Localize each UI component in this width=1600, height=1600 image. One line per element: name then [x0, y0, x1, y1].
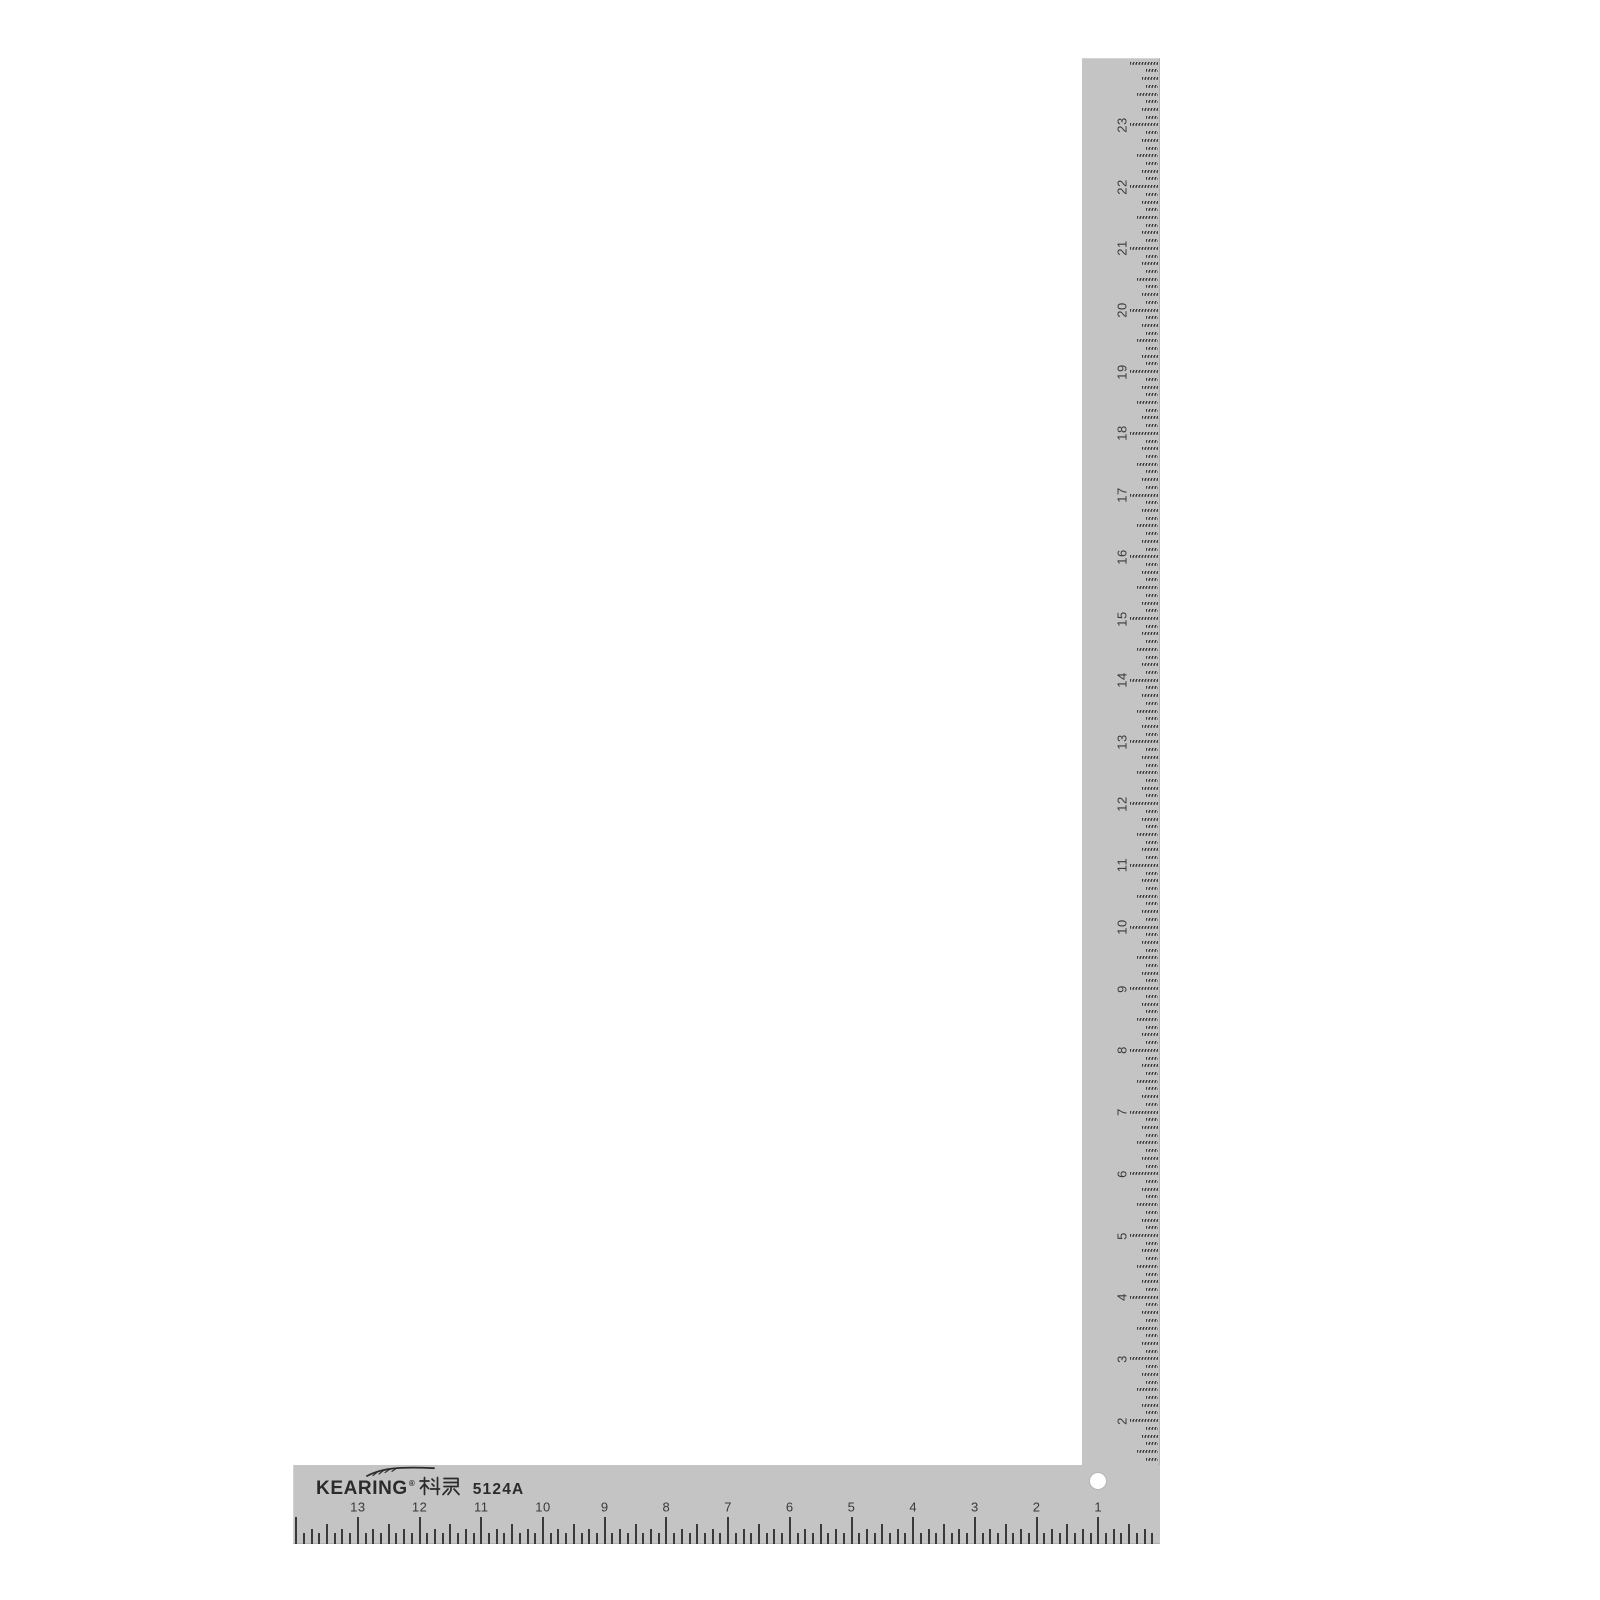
horizontal-tick-mark — [434, 1529, 436, 1544]
vertical-tick-mark — [1142, 1003, 1158, 1006]
vertical-tick-mark — [1142, 170, 1158, 173]
vertical-tick-mark — [1146, 378, 1158, 381]
vertical-tick-mark — [1146, 933, 1158, 936]
vertical-tick-mark — [1146, 918, 1158, 921]
vertical-tick-mark — [1146, 1381, 1158, 1384]
horizontal-tick-mark — [989, 1529, 991, 1544]
horizontal-tick-mark — [912, 1517, 914, 1544]
vertical-tick-mark — [1146, 239, 1158, 242]
horizontal-tick-mark — [1074, 1533, 1076, 1544]
horizontal-tick-mark — [519, 1533, 521, 1544]
vertical-tick-mark — [1137, 401, 1158, 404]
horizontal-tick-mark — [581, 1533, 583, 1544]
vertical-tick-mark — [1146, 1257, 1158, 1260]
ruler-vertical-arm: 1234567891011121314151617181920212223 — [1082, 58, 1160, 1544]
horizontal-tick-mark — [349, 1533, 351, 1544]
vertical-tick-mark — [1146, 671, 1158, 674]
vertical-tick-mark — [1146, 1288, 1158, 1291]
hanging-hole — [1090, 1473, 1106, 1489]
horizontal-tick-mark — [604, 1517, 606, 1544]
vertical-inch-label: 23 — [1116, 117, 1129, 132]
horizontal-tick-mark — [627, 1533, 629, 1544]
horizontal-tick-mark — [874, 1533, 876, 1544]
vertical-tick-mark — [1146, 409, 1158, 412]
vertical-tick-mark — [1142, 972, 1158, 975]
horizontal-tick-mark — [611, 1533, 613, 1544]
horizontal-tick-mark — [650, 1529, 652, 1544]
vertical-tick-mark — [1142, 571, 1158, 574]
vertical-tick-mark — [1146, 594, 1158, 597]
horizontal-inch-label: 9 — [601, 1501, 609, 1514]
vertical-tick-mark — [1130, 1357, 1158, 1360]
horizontal-tick-mark — [542, 1517, 544, 1544]
horizontal-tick-mark — [295, 1517, 297, 1544]
vertical-tick-mark — [1130, 247, 1158, 250]
vertical-tick-mark — [1146, 1365, 1158, 1368]
vertical-inch-label: 7 — [1116, 1108, 1129, 1116]
horizontal-tick-mark — [1136, 1533, 1138, 1544]
horizontal-tick-mark — [1051, 1529, 1053, 1544]
vertical-tick-mark — [1142, 1095, 1158, 1098]
vertical-tick-mark — [1142, 447, 1158, 450]
horizontal-tick-mark — [773, 1529, 775, 1544]
vertical-tick-mark — [1130, 494, 1158, 497]
horizontal-tick-mark — [712, 1529, 714, 1544]
vertical-tick-mark — [1146, 255, 1158, 258]
horizontal-tick-mark — [419, 1517, 421, 1544]
vertical-tick-mark — [1146, 162, 1158, 165]
horizontal-tick-mark — [812, 1533, 814, 1544]
vertical-tick-mark — [1142, 1404, 1158, 1407]
vertical-tick-mark — [1146, 887, 1158, 890]
vertical-tick-mark — [1137, 710, 1158, 713]
horizontal-tick-mark — [1113, 1529, 1115, 1544]
vertical-tick-mark — [1142, 879, 1158, 882]
horizontal-tick-mark — [974, 1517, 976, 1544]
vertical-tick-mark — [1137, 956, 1158, 959]
vertical-tick-mark — [1146, 270, 1158, 273]
vertical-tick-mark — [1142, 787, 1158, 790]
vertical-tick-mark — [1142, 1311, 1158, 1314]
vertical-tick-mark — [1142, 1033, 1158, 1036]
horizontal-tick-mark — [758, 1524, 760, 1544]
horizontal-tick-mark — [388, 1524, 390, 1544]
vertical-tick-mark — [1146, 733, 1158, 736]
vertical-tick-mark — [1137, 648, 1158, 651]
vertical-inch-label: 22 — [1116, 179, 1129, 194]
vertical-tick-mark — [1137, 93, 1158, 96]
vertical-tick-mark — [1146, 116, 1158, 119]
horizontal-tick-mark — [982, 1533, 984, 1544]
ruler-horizontal-arm: 12345678910111213 KEARING ® 5124A — [293, 1465, 1160, 1544]
vertical-tick-mark — [1142, 201, 1158, 204]
vertical-tick-mark — [1146, 69, 1158, 72]
vertical-tick-mark — [1130, 1172, 1158, 1175]
vertical-tick-mark — [1137, 216, 1158, 219]
horizontal-inch-label: 8 — [663, 1501, 671, 1514]
vertical-tick-mark — [1146, 1442, 1158, 1445]
vertical-tick-mark — [1142, 1435, 1158, 1438]
horizontal-tick-mark — [897, 1529, 899, 1544]
horizontal-tick-mark — [573, 1524, 575, 1544]
vertical-tick-mark — [1146, 856, 1158, 859]
vertical-tick-mark — [1142, 848, 1158, 851]
vertical-inch-label: 17 — [1116, 487, 1129, 502]
vertical-tick-mark — [1146, 578, 1158, 581]
horizontal-tick-mark — [642, 1533, 644, 1544]
horizontal-tick-mark — [442, 1533, 444, 1544]
vertical-tick-mark — [1146, 208, 1158, 211]
horizontal-tick-mark — [866, 1529, 868, 1544]
horizontal-tick-mark — [311, 1529, 313, 1544]
vertical-tick-mark — [1130, 1419, 1158, 1422]
vertical-tick-mark — [1146, 1087, 1158, 1090]
horizontal-tick-mark — [1059, 1533, 1061, 1544]
horizontal-tick-mark — [851, 1517, 853, 1544]
horizontal-inch-label: 3 — [971, 1501, 979, 1514]
horizontal-tick-mark — [596, 1533, 598, 1544]
vertical-tick-mark — [1142, 1157, 1158, 1160]
vertical-inch-label: 16 — [1116, 549, 1129, 564]
vertical-tick-mark — [1146, 470, 1158, 473]
horizontal-tick-mark — [411, 1533, 413, 1544]
vertical-tick-mark — [1137, 339, 1158, 342]
vertical-tick-mark — [1146, 841, 1158, 844]
horizontal-tick-mark — [588, 1529, 590, 1544]
vertical-tick-mark — [1146, 1134, 1158, 1137]
vertical-tick-mark — [1146, 794, 1158, 797]
vertical-tick-mark — [1146, 548, 1158, 551]
vertical-tick-mark — [1146, 1396, 1158, 1399]
vertical-inch-label: 21 — [1116, 241, 1129, 256]
brand-cjk-characters — [418, 1476, 462, 1496]
vertical-tick-mark — [1130, 1234, 1158, 1237]
vertical-tick-mark — [1146, 702, 1158, 705]
horizontal-tick-mark — [1090, 1533, 1092, 1544]
horizontal-tick-mark — [457, 1533, 459, 1544]
vertical-tick-mark — [1146, 902, 1158, 905]
horizontal-tick-mark — [1082, 1529, 1084, 1544]
horizontal-tick-mark — [935, 1533, 937, 1544]
vertical-tick-mark — [1142, 1373, 1158, 1376]
horizontal-tick-mark — [511, 1524, 513, 1544]
horizontal-tick-mark — [1012, 1533, 1014, 1544]
horizontal-tick-mark — [465, 1529, 467, 1544]
vertical-tick-mark — [1146, 609, 1158, 612]
vertical-tick-mark — [1142, 324, 1158, 327]
vertical-tick-mark — [1142, 1219, 1158, 1222]
horizontal-tick-mark — [696, 1524, 698, 1544]
vertical-inch-label: 12 — [1116, 796, 1129, 811]
vertical-tick-mark — [1130, 1111, 1158, 1114]
vertical-tick-mark — [1146, 501, 1158, 504]
vertical-tick-mark — [1137, 1203, 1158, 1206]
vertical-tick-mark — [1146, 640, 1158, 643]
horizontal-tick-mark — [1151, 1533, 1153, 1544]
vertical-inch-label: 13 — [1116, 734, 1129, 749]
vertical-tick-mark — [1130, 555, 1158, 558]
vertical-inch-label: 10 — [1116, 919, 1129, 934]
vertical-tick-mark — [1146, 1458, 1158, 1461]
vertical-inch-label: 9 — [1116, 985, 1129, 993]
horizontal-tick-mark — [750, 1533, 752, 1544]
horizontal-tick-mark — [958, 1529, 960, 1544]
horizontal-tick-mark — [1066, 1524, 1068, 1544]
vertical-tick-mark — [1130, 1296, 1158, 1299]
horizontal-tick-mark — [357, 1517, 359, 1544]
vertical-tick-mark — [1142, 818, 1158, 821]
vertical-tick-mark — [1146, 686, 1158, 689]
vertical-tick-mark — [1142, 386, 1158, 389]
vertical-tick-mark — [1130, 123, 1158, 126]
horizontal-tick-mark — [503, 1533, 505, 1544]
vertical-tick-mark — [1146, 1041, 1158, 1044]
vertical-tick-mark — [1146, 131, 1158, 134]
vertical-tick-mark — [1146, 1411, 1158, 1414]
vertical-tick-mark — [1142, 1280, 1158, 1283]
model-number: 5124A — [473, 1481, 525, 1499]
vertical-tick-mark — [1130, 1049, 1158, 1052]
vertical-tick-mark — [1146, 779, 1158, 782]
vertical-inch-label: 8 — [1116, 1047, 1129, 1055]
horizontal-tick-mark — [881, 1524, 883, 1544]
brand-name: KEARING — [316, 1478, 408, 1500]
horizontal-tick-mark — [889, 1533, 891, 1544]
horizontal-inch-label: 1 — [1094, 1501, 1102, 1514]
horizontal-inch-label: 11 — [474, 1501, 489, 1514]
vertical-tick-mark — [1137, 771, 1158, 774]
horizontal-tick-mark — [1105, 1533, 1107, 1544]
vertical-tick-mark — [1146, 1334, 1158, 1337]
horizontal-inch-label: 5 — [848, 1501, 856, 1514]
vertical-tick-mark — [1146, 393, 1158, 396]
vertical-tick-mark — [1146, 1350, 1158, 1353]
vertical-tick-mark — [1130, 926, 1158, 929]
vertical-tick-mark — [1146, 717, 1158, 720]
horizontal-inch-label: 6 — [786, 1501, 794, 1514]
vertical-tick-mark — [1146, 147, 1158, 150]
vertical-tick-mark — [1146, 1149, 1158, 1152]
vertical-tick-mark — [1130, 432, 1158, 435]
horizontal-tick-mark — [496, 1529, 498, 1544]
horizontal-inch-label: 4 — [909, 1501, 917, 1514]
horizontal-tick-mark — [781, 1533, 783, 1544]
vertical-tick-mark — [1142, 1342, 1158, 1345]
vertical-tick-mark — [1137, 1018, 1158, 1021]
vertical-tick-mark — [1142, 1188, 1158, 1191]
vertical-tick-mark — [1142, 108, 1158, 111]
vertical-tick-mark — [1137, 278, 1158, 281]
horizontal-tick-mark — [635, 1524, 637, 1544]
vertical-tick-mark — [1146, 224, 1158, 227]
vertical-tick-mark — [1146, 285, 1158, 288]
horizontal-tick-mark — [395, 1533, 397, 1544]
horizontal-tick-mark — [673, 1533, 675, 1544]
vertical-tick-mark — [1146, 85, 1158, 88]
horizontal-inch-label: 7 — [724, 1501, 732, 1514]
horizontal-inch-label: 10 — [535, 1501, 550, 1514]
vertical-tick-mark — [1142, 941, 1158, 944]
vertical-tick-mark — [1146, 995, 1158, 998]
horizontal-tick-mark — [341, 1529, 343, 1544]
vertical-tick-mark — [1142, 416, 1158, 419]
vertical-tick-mark — [1137, 1450, 1158, 1453]
horizontal-tick-mark — [766, 1533, 768, 1544]
vertical-tick-mark — [1146, 825, 1158, 828]
vertical-inch-label: 15 — [1116, 611, 1129, 626]
vertical-tick-mark — [1146, 1195, 1158, 1198]
horizontal-tick-mark — [735, 1533, 737, 1544]
vertical-tick-mark — [1142, 756, 1158, 759]
vertical-tick-mark — [1146, 440, 1158, 443]
vertical-tick-mark — [1130, 185, 1158, 188]
horizontal-tick-mark — [1128, 1524, 1130, 1544]
vertical-tick-mark — [1146, 1118, 1158, 1121]
vertical-tick-mark — [1142, 1249, 1158, 1252]
horizontal-tick-mark — [835, 1529, 837, 1544]
vertical-tick-mark — [1130, 679, 1158, 682]
vertical-tick-mark — [1146, 100, 1158, 103]
horizontal-tick-mark — [804, 1529, 806, 1544]
vertical-tick-mark — [1146, 347, 1158, 350]
horizontal-tick-mark — [1043, 1533, 1045, 1544]
vertical-inch-label: 5 — [1116, 1232, 1129, 1240]
vertical-tick-mark — [1137, 463, 1158, 466]
horizontal-tick-mark — [904, 1533, 906, 1544]
vertical-tick-mark — [1137, 1327, 1158, 1330]
vertical-inch-label: 19 — [1116, 364, 1129, 379]
horizontal-tick-mark — [928, 1529, 930, 1544]
vertical-tick-mark — [1142, 355, 1158, 358]
horizontal-tick-mark — [704, 1533, 706, 1544]
horizontal-inch-label: 13 — [350, 1501, 365, 1514]
vertical-inch-label: 3 — [1116, 1355, 1129, 1363]
vertical-tick-mark — [1146, 1010, 1158, 1013]
vertical-tick-mark — [1146, 1057, 1158, 1060]
horizontal-tick-mark — [550, 1533, 552, 1544]
horizontal-tick-mark — [1020, 1529, 1022, 1544]
horizontal-tick-mark — [797, 1533, 799, 1544]
vertical-tick-mark — [1146, 563, 1158, 566]
vertical-tick-mark — [1146, 979, 1158, 982]
horizontal-tick-mark — [843, 1533, 845, 1544]
horizontal-tick-mark — [689, 1533, 691, 1544]
horizontal-tick-mark — [527, 1529, 529, 1544]
horizontal-tick-mark — [951, 1533, 953, 1544]
vertical-tick-mark — [1146, 1211, 1158, 1214]
vertical-tick-mark — [1130, 864, 1158, 867]
vertical-tick-mark — [1130, 62, 1158, 65]
horizontal-tick-mark — [380, 1533, 382, 1544]
horizontal-tick-mark — [665, 1517, 667, 1544]
horizontal-tick-mark — [403, 1529, 405, 1544]
vertical-inch-label: 14 — [1116, 672, 1129, 687]
horizontal-tick-mark — [997, 1533, 999, 1544]
horizontal-tick-mark — [334, 1533, 336, 1544]
horizontal-tick-mark — [318, 1533, 320, 1544]
vertical-tick-mark — [1146, 748, 1158, 751]
horizontal-tick-mark — [789, 1517, 791, 1544]
vertical-tick-mark — [1146, 1319, 1158, 1322]
vertical-tick-mark — [1146, 332, 1158, 335]
vertical-tick-mark — [1146, 810, 1158, 813]
horizontal-tick-mark — [658, 1533, 660, 1544]
vertical-tick-mark — [1146, 764, 1158, 767]
horizontal-tick-mark — [488, 1533, 490, 1544]
vertical-tick-mark — [1146, 949, 1158, 952]
horizontal-tick-mark — [473, 1533, 475, 1544]
horizontal-tick-mark — [426, 1533, 428, 1544]
horizontal-tick-mark — [1005, 1524, 1007, 1544]
vertical-tick-mark — [1142, 77, 1158, 80]
vertical-tick-mark — [1137, 1080, 1158, 1083]
horizontal-tick-mark — [1028, 1533, 1030, 1544]
registered-trademark: ® — [409, 1479, 415, 1488]
vertical-tick-mark — [1142, 293, 1158, 296]
vertical-inch-label: 2 — [1116, 1417, 1129, 1425]
horizontal-tick-mark — [565, 1533, 567, 1544]
vertical-tick-mark — [1142, 663, 1158, 666]
horizontal-tick-mark — [480, 1517, 482, 1544]
horizontal-tick-mark — [858, 1533, 860, 1544]
vertical-tick-mark — [1146, 1427, 1158, 1430]
horizontal-inch-label: 12 — [412, 1501, 427, 1514]
vertical-tick-mark — [1142, 910, 1158, 913]
horizontal-tick-mark — [534, 1533, 536, 1544]
vertical-tick-mark — [1130, 802, 1158, 805]
vertical-tick-mark — [1146, 1226, 1158, 1229]
vertical-tick-mark — [1142, 694, 1158, 697]
vertical-tick-mark — [1146, 455, 1158, 458]
vertical-tick-mark — [1137, 1388, 1158, 1391]
vertical-inch-label: 6 — [1116, 1170, 1129, 1178]
horizontal-inch-label: 2 — [1033, 1501, 1041, 1514]
vertical-tick-mark — [1142, 540, 1158, 543]
horizontal-tick-mark — [365, 1533, 367, 1544]
vertical-tick-mark — [1146, 424, 1158, 427]
vertical-tick-mark — [1146, 1072, 1158, 1075]
vertical-tick-mark — [1137, 1265, 1158, 1268]
horizontal-tick-mark — [1036, 1517, 1038, 1544]
vertical-inch-label: 20 — [1116, 302, 1129, 317]
vertical-tick-mark — [1142, 509, 1158, 512]
vertical-tick-mark — [1142, 231, 1158, 234]
vertical-tick-mark — [1130, 987, 1158, 990]
vertical-inch-label: 18 — [1116, 426, 1129, 441]
horizontal-tick-mark — [1144, 1529, 1146, 1544]
vertical-tick-mark — [1146, 625, 1158, 628]
horizontal-tick-mark — [681, 1529, 683, 1544]
vertical-tick-mark — [1137, 895, 1158, 898]
horizontal-tick-mark — [557, 1529, 559, 1544]
horizontal-tick-mark — [920, 1533, 922, 1544]
horizontal-tick-mark — [727, 1517, 729, 1544]
vertical-tick-mark — [1146, 964, 1158, 967]
vertical-tick-mark — [1146, 1180, 1158, 1183]
horizontal-tick-mark — [943, 1524, 945, 1544]
horizontal-tick-mark — [719, 1533, 721, 1544]
vertical-tick-mark — [1137, 833, 1158, 836]
vertical-tick-mark — [1130, 617, 1158, 620]
vertical-tick-mark — [1142, 478, 1158, 481]
horizontal-tick-mark — [1120, 1533, 1122, 1544]
vertical-tick-mark — [1146, 872, 1158, 875]
vertical-tick-mark — [1146, 486, 1158, 489]
vertical-tick-mark — [1130, 370, 1158, 373]
horizontal-tick-mark — [372, 1529, 374, 1544]
horizontal-tick-mark — [303, 1533, 305, 1544]
vertical-tick-mark — [1137, 524, 1158, 527]
